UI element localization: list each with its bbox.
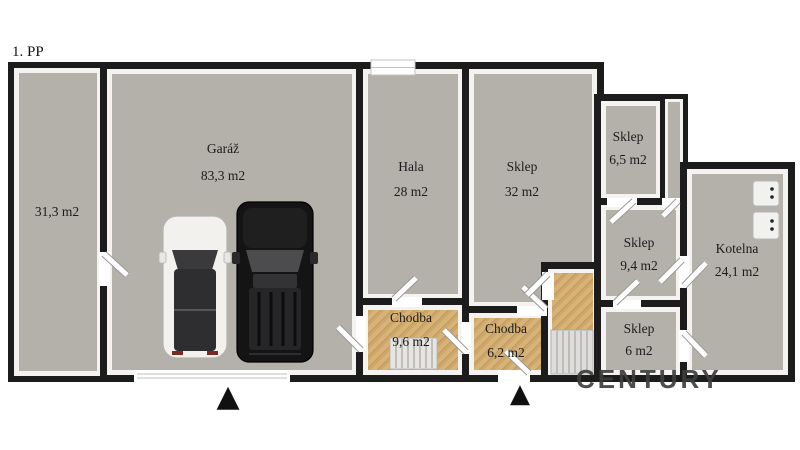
room-area: 6,2 m2 (487, 345, 525, 360)
entrance-arrow-icon: ▲ (510, 379, 530, 409)
room-area: 83,3 m2 (201, 168, 245, 183)
room-label: Sklep (624, 235, 655, 250)
room-sklep65 (594, 94, 668, 206)
room-area: 9,4 m2 (620, 258, 658, 273)
watermark: CENTURY (576, 364, 722, 394)
room-area: 24,1 m2 (715, 264, 759, 279)
car-white-icon (159, 216, 231, 358)
room-area: 6 m2 (625, 343, 652, 358)
room-area: 28 m2 (394, 184, 428, 199)
room-label: Garáž (207, 141, 239, 156)
car-black-icon (232, 202, 318, 362)
room-label: Chodba (390, 310, 432, 325)
room-label: Sklep (624, 321, 655, 336)
entrance-arrow-icon: ▲ (216, 379, 239, 414)
floor-label: 1. PP (12, 44, 44, 60)
room-left (8, 62, 108, 382)
window (371, 60, 415, 75)
floor-plan: 1. PP (0, 0, 800, 450)
room-area: 31,3 m2 (35, 204, 79, 219)
room-area: 6,5 m2 (609, 152, 647, 167)
room-label: Sklep (613, 129, 644, 144)
room-label: Sklep (507, 159, 538, 174)
room-area: 32 m2 (505, 184, 539, 199)
room-area: 9,6 m2 (392, 334, 430, 349)
room-label: Chodba (485, 321, 527, 336)
garage-door (134, 370, 290, 383)
room-sklep94 (594, 198, 688, 308)
floor-plan-page: 1. PP (0, 0, 800, 450)
room-label: Kotelna (716, 241, 759, 256)
room-label: Hala (398, 159, 423, 174)
room-garaz (100, 62, 364, 382)
